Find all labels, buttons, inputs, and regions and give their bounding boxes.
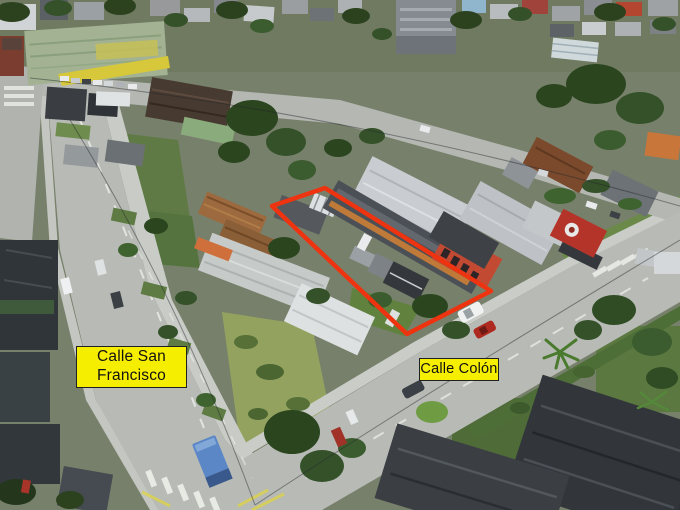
street-label-calle-colon: Calle Colón: [419, 358, 499, 381]
street-label-line: Calle San: [97, 348, 166, 367]
street-label-line: Calle Colón: [420, 361, 497, 379]
aerial-photo: Calle San Francisco Calle Colón: [0, 0, 680, 510]
scene-illustration: [0, 0, 680, 510]
street-label-line: Francisco: [97, 367, 166, 386]
street-label-calle-san-francisco: Calle San Francisco: [76, 346, 187, 388]
